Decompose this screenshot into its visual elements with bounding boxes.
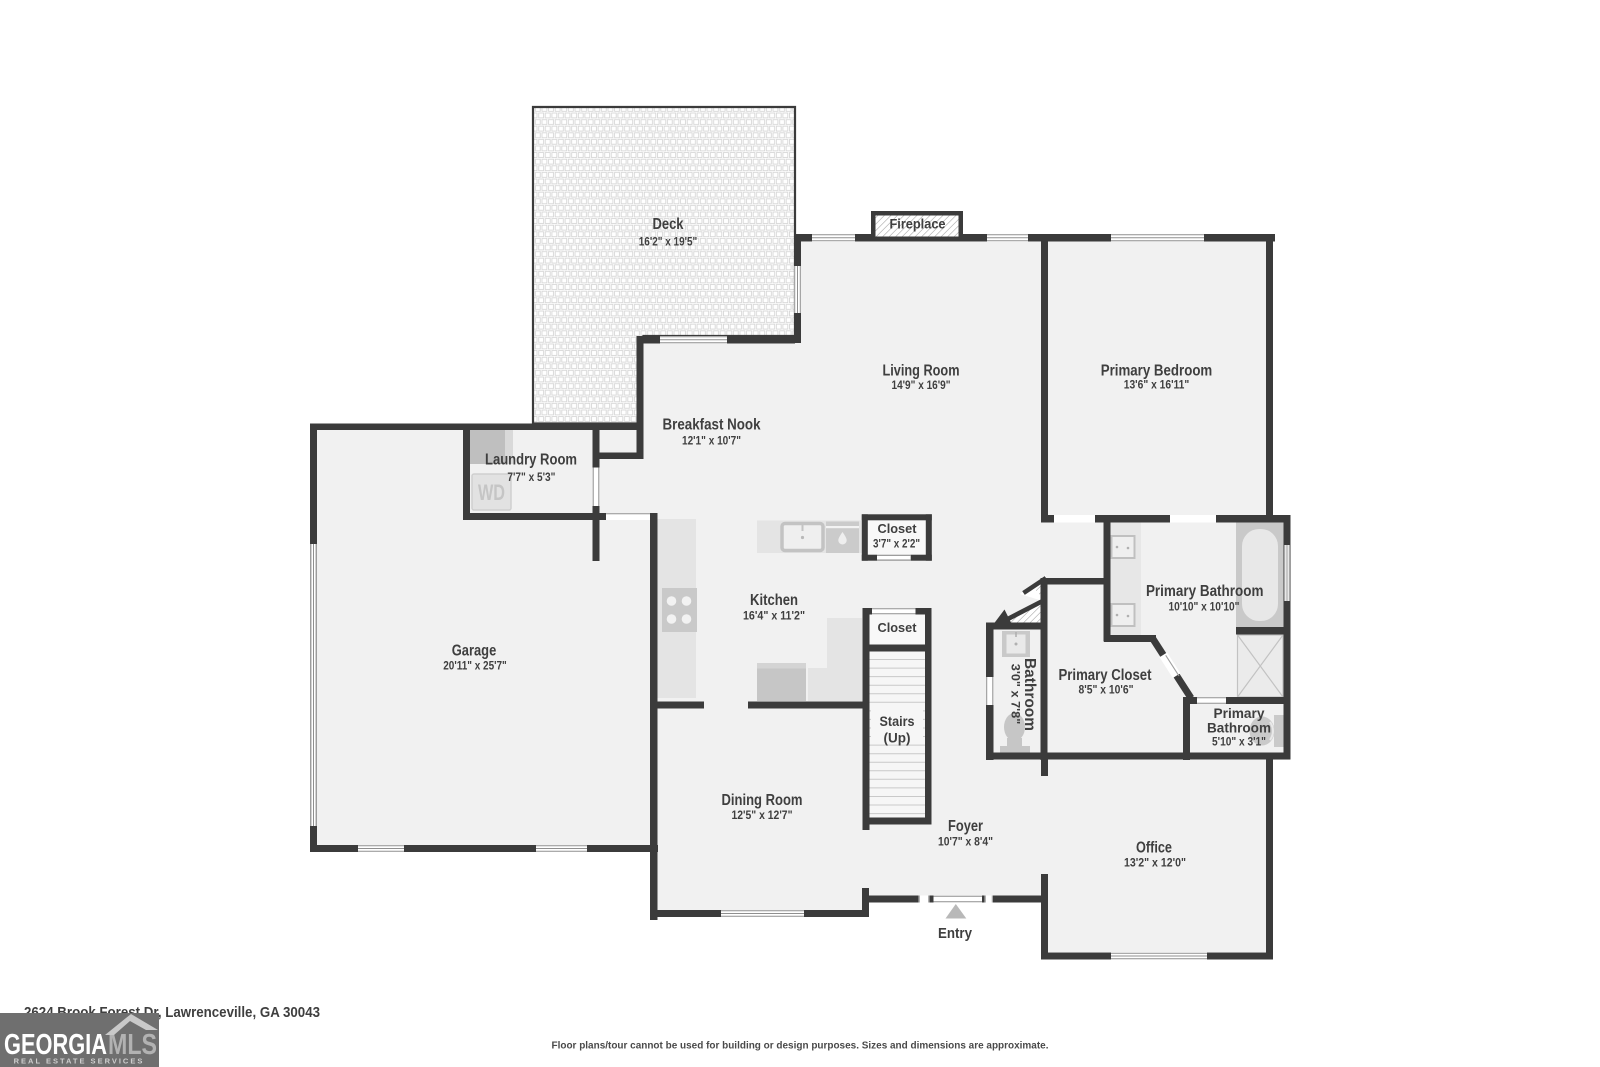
svg-text:13'6" x 16'11": 13'6" x 16'11": [1124, 378, 1190, 392]
svg-text:20'11" x 25'7": 20'11" x 25'7": [443, 659, 507, 673]
svg-text:REAL ESTATE SERVICES: REAL ESTATE SERVICES: [14, 1057, 145, 1066]
svg-text:Closet: Closet: [878, 620, 918, 635]
svg-text:16'4" x 11'2": 16'4" x 11'2": [743, 609, 805, 623]
svg-text:Stairs: Stairs: [880, 713, 915, 729]
svg-text:12'1" x 10'7": 12'1" x 10'7": [682, 434, 741, 448]
svg-text:13'2" x 12'0": 13'2" x 12'0": [1124, 856, 1186, 870]
svg-text:Fireplace: Fireplace: [890, 217, 946, 232]
svg-text:7'7" x 5'3": 7'7" x 5'3": [507, 470, 555, 484]
svg-text:Breakfast Nook: Breakfast Nook: [663, 417, 761, 434]
svg-text:Closet: Closet: [878, 521, 918, 536]
svg-text:Dining Room: Dining Room: [722, 792, 803, 809]
svg-text:3'0" x 7'8": 3'0" x 7'8": [1009, 664, 1023, 725]
svg-text:16'2" x 19'5": 16'2" x 19'5": [639, 235, 698, 249]
svg-text:Kitchen: Kitchen: [750, 592, 798, 609]
svg-text:Entry: Entry: [938, 925, 973, 942]
svg-text:Garage: Garage: [452, 643, 497, 660]
svg-text:3'7" x 2'2": 3'7" x 2'2": [873, 539, 920, 551]
svg-text:(Up): (Up): [884, 730, 911, 746]
svg-text:Primary Closet: Primary Closet: [1059, 667, 1153, 684]
svg-text:Foyer: Foyer: [948, 818, 983, 835]
svg-text:Bathroom: Bathroom: [1021, 658, 1038, 731]
svg-text:Floor plans/tour cannot be use: Floor plans/tour cannot be used for buil…: [552, 1040, 1049, 1052]
svg-text:Deck: Deck: [653, 216, 684, 233]
svg-text:10'10" x 10'10": 10'10" x 10'10": [1169, 600, 1240, 614]
svg-text:8'5" x 10'6": 8'5" x 10'6": [1079, 683, 1134, 697]
svg-text:5'10" x 3'1": 5'10" x 3'1": [1212, 737, 1266, 749]
svg-text:Office: Office: [1136, 840, 1172, 857]
svg-text:Bathroom: Bathroom: [1207, 720, 1271, 736]
svg-text:10'7" x 8'4": 10'7" x 8'4": [938, 835, 993, 849]
svg-text:WD: WD: [478, 480, 505, 505]
svg-text:Primary Bathroom: Primary Bathroom: [1146, 583, 1264, 600]
svg-text:14'9" x 16'9": 14'9" x 16'9": [892, 378, 951, 392]
svg-text:12'5" x 12'7": 12'5" x 12'7": [732, 808, 793, 822]
svg-text:Living Room: Living Room: [883, 362, 960, 379]
svg-text:Laundry Room: Laundry Room: [485, 452, 577, 469]
